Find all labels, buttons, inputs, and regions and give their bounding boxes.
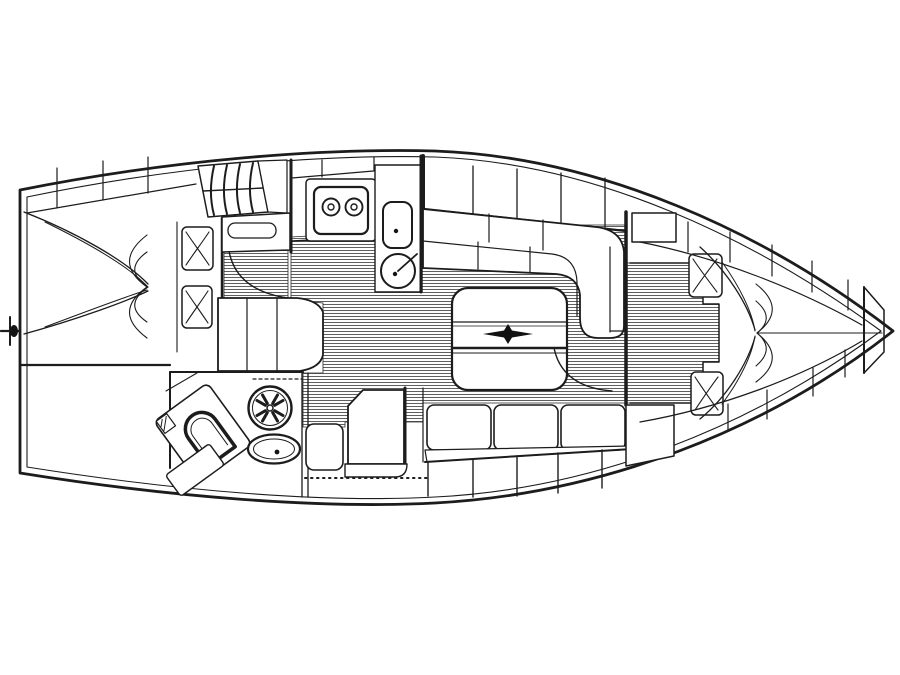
nav-seat [306,424,343,470]
saloon-table [452,288,567,390]
floor-plan-svg [0,0,900,675]
shower-fan-icon [249,387,292,430]
stove [306,179,376,241]
stern-fitting-icon [1,317,20,345]
washbasin [248,435,300,464]
boat-floor-plan [0,0,900,675]
boat-layout-canvas [0,0,900,675]
nav-bench [345,464,407,477]
engine-cover [222,213,290,252]
sink-unit [375,165,422,292]
fore-entry-locker-bottom [626,405,674,466]
fore-entry-locker-top [632,213,676,242]
chart-table [348,390,404,464]
rect-sink [383,202,412,248]
wardrobe-cabinet [218,298,323,371]
